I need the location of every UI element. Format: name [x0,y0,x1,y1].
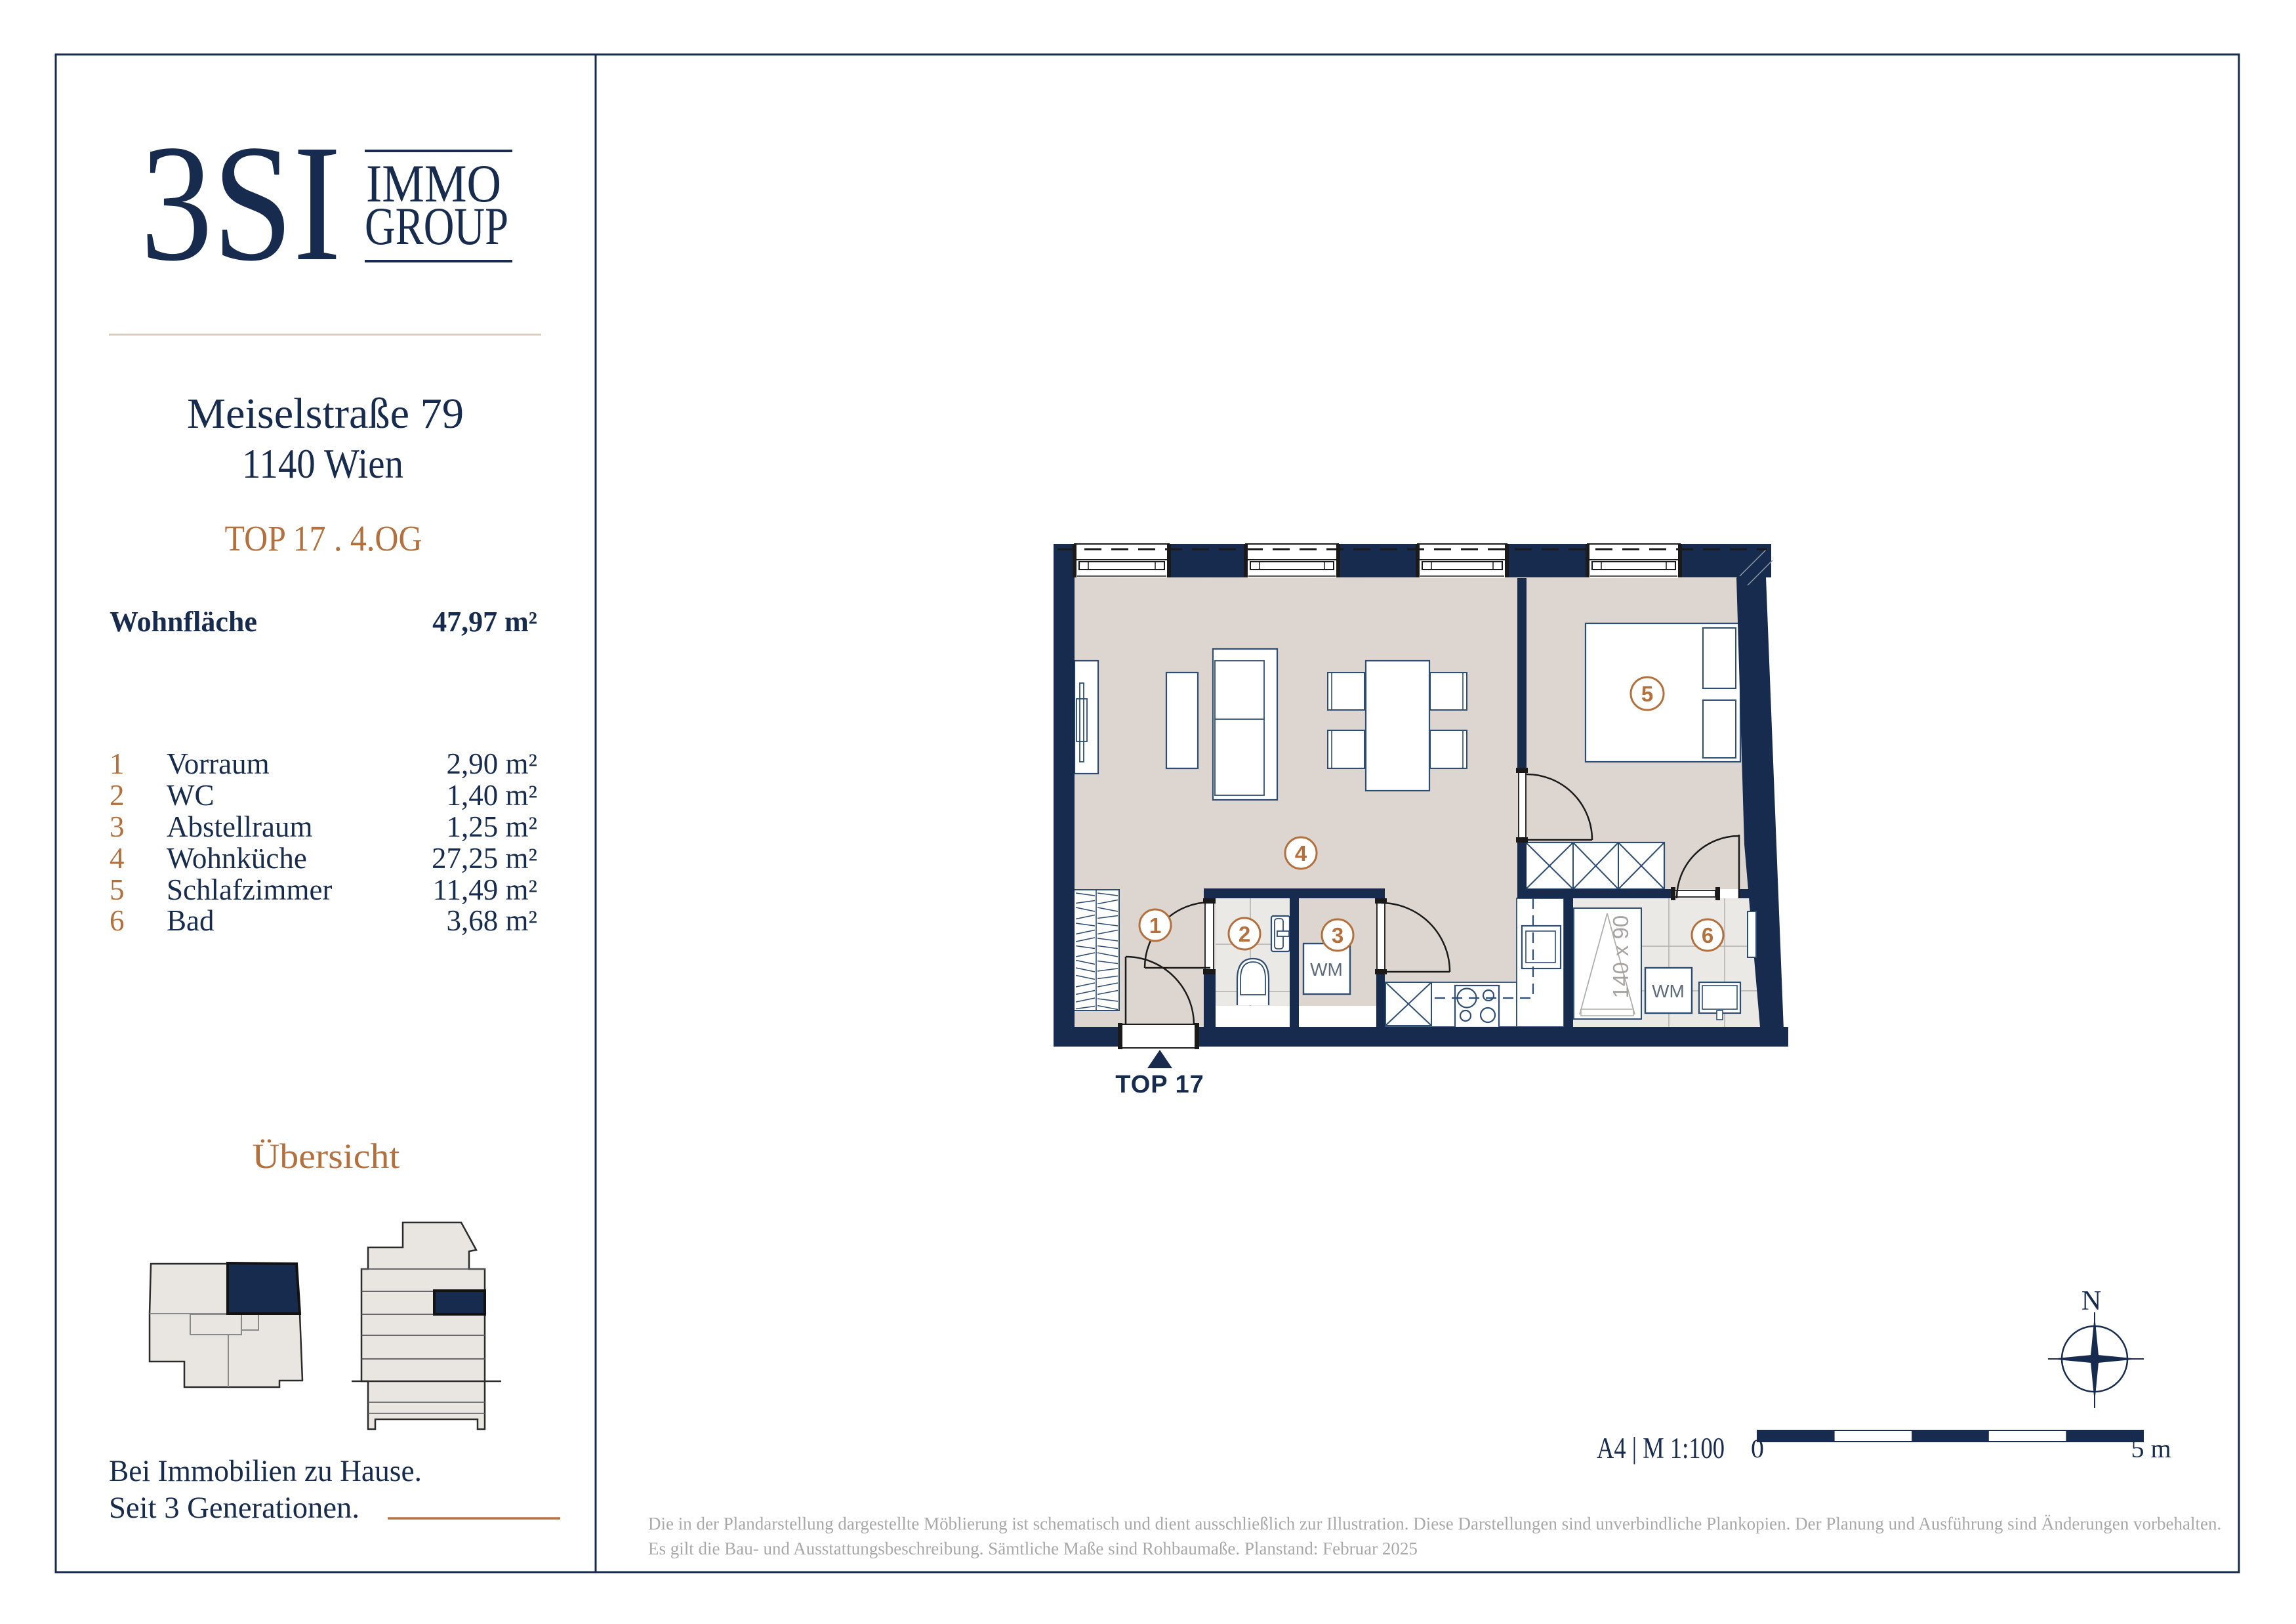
svg-text:Abstellraum: Abstellraum [167,810,312,843]
svg-text:1,25 m²: 1,25 m² [447,810,538,843]
svg-text:5: 5 [1641,682,1653,706]
svg-text:TOP 17 . 4.OG: TOP 17 . 4.OG [225,518,422,558]
svg-text:4: 4 [1295,841,1307,865]
svg-text:WC: WC [167,779,215,812]
svg-text:WM: WM [1652,981,1685,1001]
svg-text:Vorraum: Vorraum [167,747,270,780]
svg-text:2: 2 [1239,922,1250,946]
svg-text:Die in der Plandarstellung dar: Die in der Plandarstellung dargestellte … [648,1514,2221,1533]
svg-text:1: 1 [110,747,125,780]
svg-text:Schlafzimmer: Schlafzimmer [167,873,332,906]
svg-text:TOP 17: TOP 17 [1115,1071,1204,1098]
svg-text:Wohnküche: Wohnküche [167,842,307,875]
svg-text:5: 5 [110,873,125,906]
svg-text:Bad: Bad [167,904,215,937]
svg-text:5 m: 5 m [2131,1434,2171,1463]
svg-text:Bei Immobilien zu Hause.: Bei Immobilien zu Hause. [109,1454,422,1488]
svg-text:0: 0 [1751,1434,1764,1463]
svg-text:11,49 m²: 11,49 m² [433,873,537,906]
svg-text:27,25 m²: 27,25 m² [432,842,537,875]
svg-text:2: 2 [110,779,125,812]
svg-text:WM: WM [1310,959,1343,980]
svg-text:Seit 3 Generationen.: Seit 3 Generationen. [109,1491,359,1525]
svg-text:Wohnfläche: Wohnfläche [110,606,257,638]
svg-text:A4 | M 1:100: A4 | M 1:100 [1597,1432,1725,1465]
svg-text:2,90 m²: 2,90 m² [447,747,538,780]
svg-text:3SI: 3SI [140,111,341,296]
svg-text:1,40 m²: 1,40 m² [447,779,538,812]
svg-text:6: 6 [1702,923,1713,947]
svg-text:4: 4 [110,842,125,875]
svg-text:3: 3 [110,810,125,843]
svg-text:GROUP: GROUP [365,196,508,256]
svg-text:1: 1 [1149,913,1161,938]
svg-text:N: N [2081,1286,2101,1316]
svg-text:140 x 90: 140 x 90 [1609,915,1633,999]
svg-text:3,68 m²: 3,68 m² [447,904,538,937]
svg-text:47,97 m²: 47,97 m² [432,606,537,638]
svg-text:Es gilt die Bau- und Ausstattu: Es gilt die Bau- und Ausstattungsbeschre… [648,1539,1418,1558]
svg-text:Übersicht: Übersicht [253,1136,400,1176]
svg-text:Meiselstraße 79: Meiselstraße 79 [187,390,464,438]
svg-text:3: 3 [1332,923,1343,947]
svg-text:1140 Wien: 1140 Wien [242,440,403,487]
svg-text:6: 6 [110,904,125,937]
